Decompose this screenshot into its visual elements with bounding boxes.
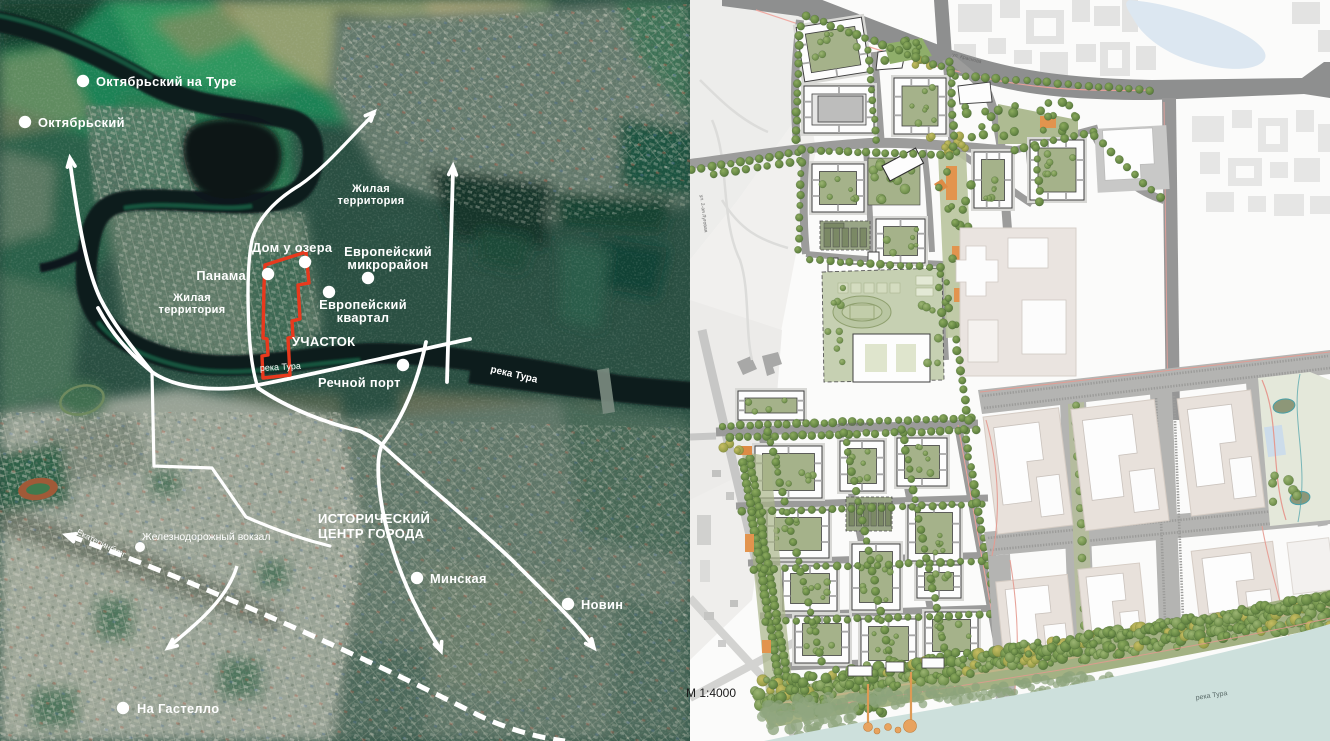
svg-text:Речной порт: Речной порт	[318, 375, 401, 390]
svg-text:Железнодорожный вокзал: Железнодорожный вокзал	[142, 531, 271, 543]
svg-text:М 1:4000: М 1:4000	[686, 686, 736, 700]
svg-text:Минская: Минская	[430, 571, 487, 586]
svg-text:Жилая: Жилая	[351, 183, 390, 195]
svg-text:микрорайон: микрорайон	[347, 257, 428, 272]
svg-text:ЦЕНТР ГОРОДА: ЦЕНТР ГОРОДА	[318, 526, 425, 541]
svg-text:Панама: Панама	[196, 268, 246, 283]
svg-text:территория: территория	[337, 195, 404, 207]
svg-text:территория: территория	[158, 304, 225, 316]
svg-text:ИСТОРИЧЕСКИЙ: ИСТОРИЧЕСКИЙ	[318, 511, 430, 526]
svg-text:Октябрьский: Октябрьский	[38, 115, 125, 130]
svg-text:На Гастелло: На Гастелло	[137, 701, 219, 716]
svg-text:Жилая: Жилая	[172, 292, 211, 304]
svg-text:Дом у озера: Дом у озера	[252, 240, 333, 255]
svg-text:Новин: Новин	[581, 597, 623, 612]
svg-text:квартал: квартал	[337, 310, 390, 325]
svg-text:УЧАСТОК: УЧАСТОК	[292, 334, 355, 349]
svg-text:ул. Ижевская: ул. Ижевская	[838, 421, 869, 428]
svg-text:Октябрьский на Туре: Октябрьский на Туре	[96, 74, 237, 89]
